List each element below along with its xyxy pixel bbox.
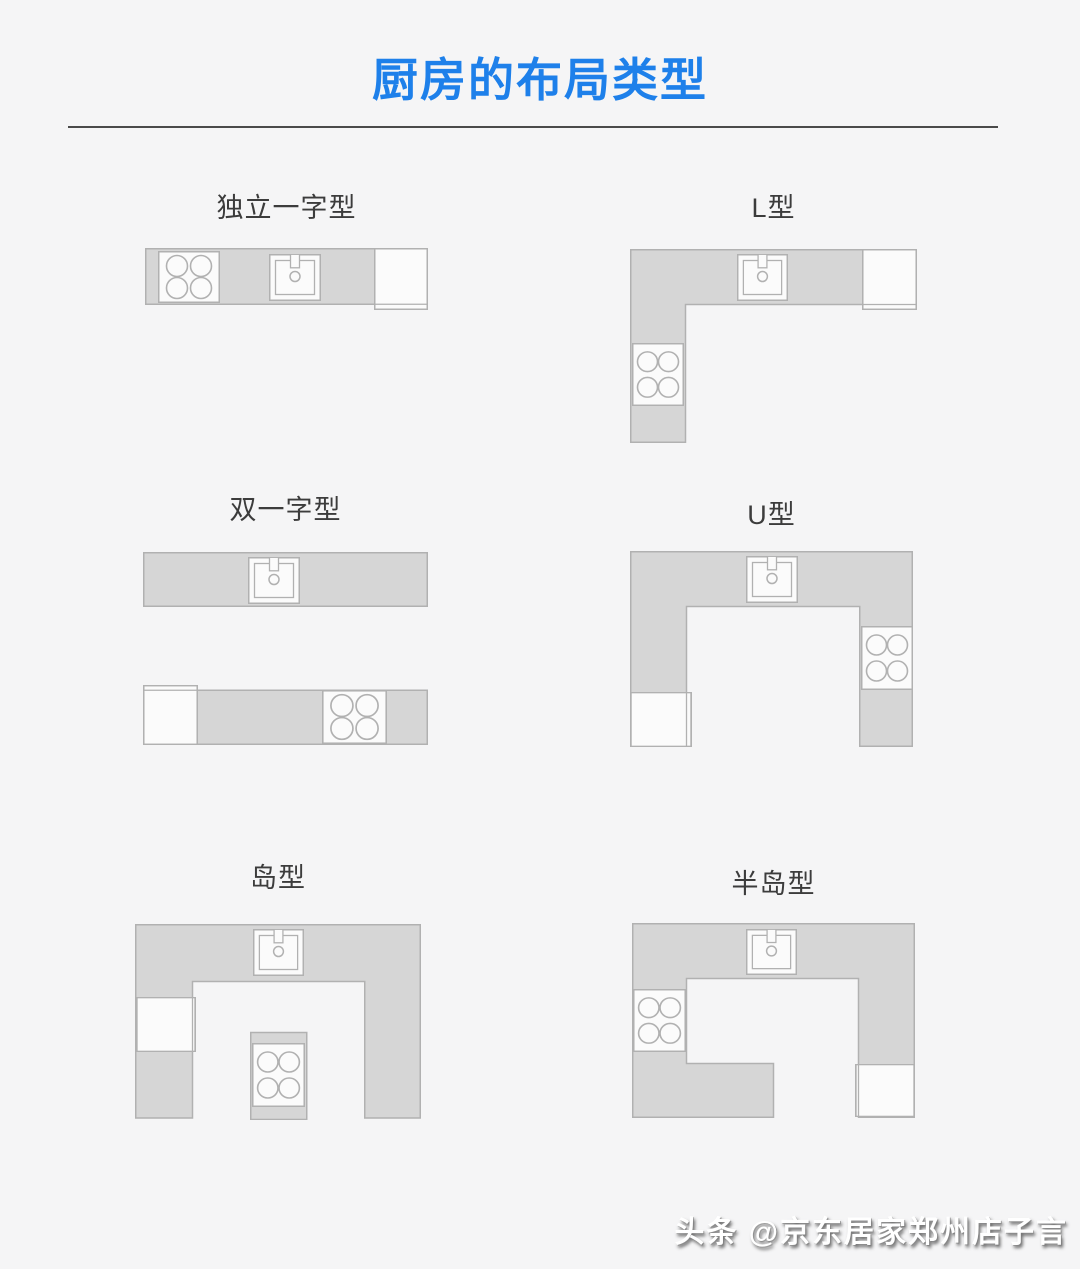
layout-label-l-shape: L型 <box>630 192 917 224</box>
fridge-box <box>856 1065 914 1117</box>
diagram-single-line <box>145 248 428 311</box>
watermark: 头条 @京东居家郑州店子言 <box>674 1207 1068 1251</box>
sink-icon <box>747 929 797 974</box>
stove-icon <box>323 691 386 743</box>
diagram-peninsula <box>632 923 915 1119</box>
layout-label-island: 岛型 <box>135 862 421 894</box>
stove-icon <box>253 1044 304 1107</box>
sink-icon <box>270 254 321 300</box>
page-title: 厨房的布局类型 <box>0 44 1080 110</box>
diagram-double-line <box>143 547 428 745</box>
fridge-box <box>631 693 691 747</box>
layout-label-peninsula: 半岛型 <box>632 868 915 900</box>
fridge-box <box>137 998 195 1052</box>
fridge-box <box>863 250 916 310</box>
diagram-l-shape <box>630 249 917 443</box>
layout-label-double-line: 双一字型 <box>143 494 428 526</box>
diagram-u-shape <box>630 551 913 747</box>
layout-label-u-shape: U型 <box>630 499 913 531</box>
fridge-box <box>144 686 197 745</box>
sink-icon <box>747 556 798 602</box>
fridge-box <box>375 249 428 310</box>
stove-icon <box>634 990 685 1052</box>
sink-icon <box>249 557 300 603</box>
diagram-island <box>135 924 421 1120</box>
layout-label-single-line: 独立一字型 <box>145 192 428 224</box>
sink-icon <box>738 254 788 300</box>
title-divider <box>68 126 998 128</box>
sink-icon <box>254 929 304 975</box>
stove-icon <box>862 627 913 690</box>
stove-icon <box>159 252 220 303</box>
stove-icon <box>633 344 684 406</box>
